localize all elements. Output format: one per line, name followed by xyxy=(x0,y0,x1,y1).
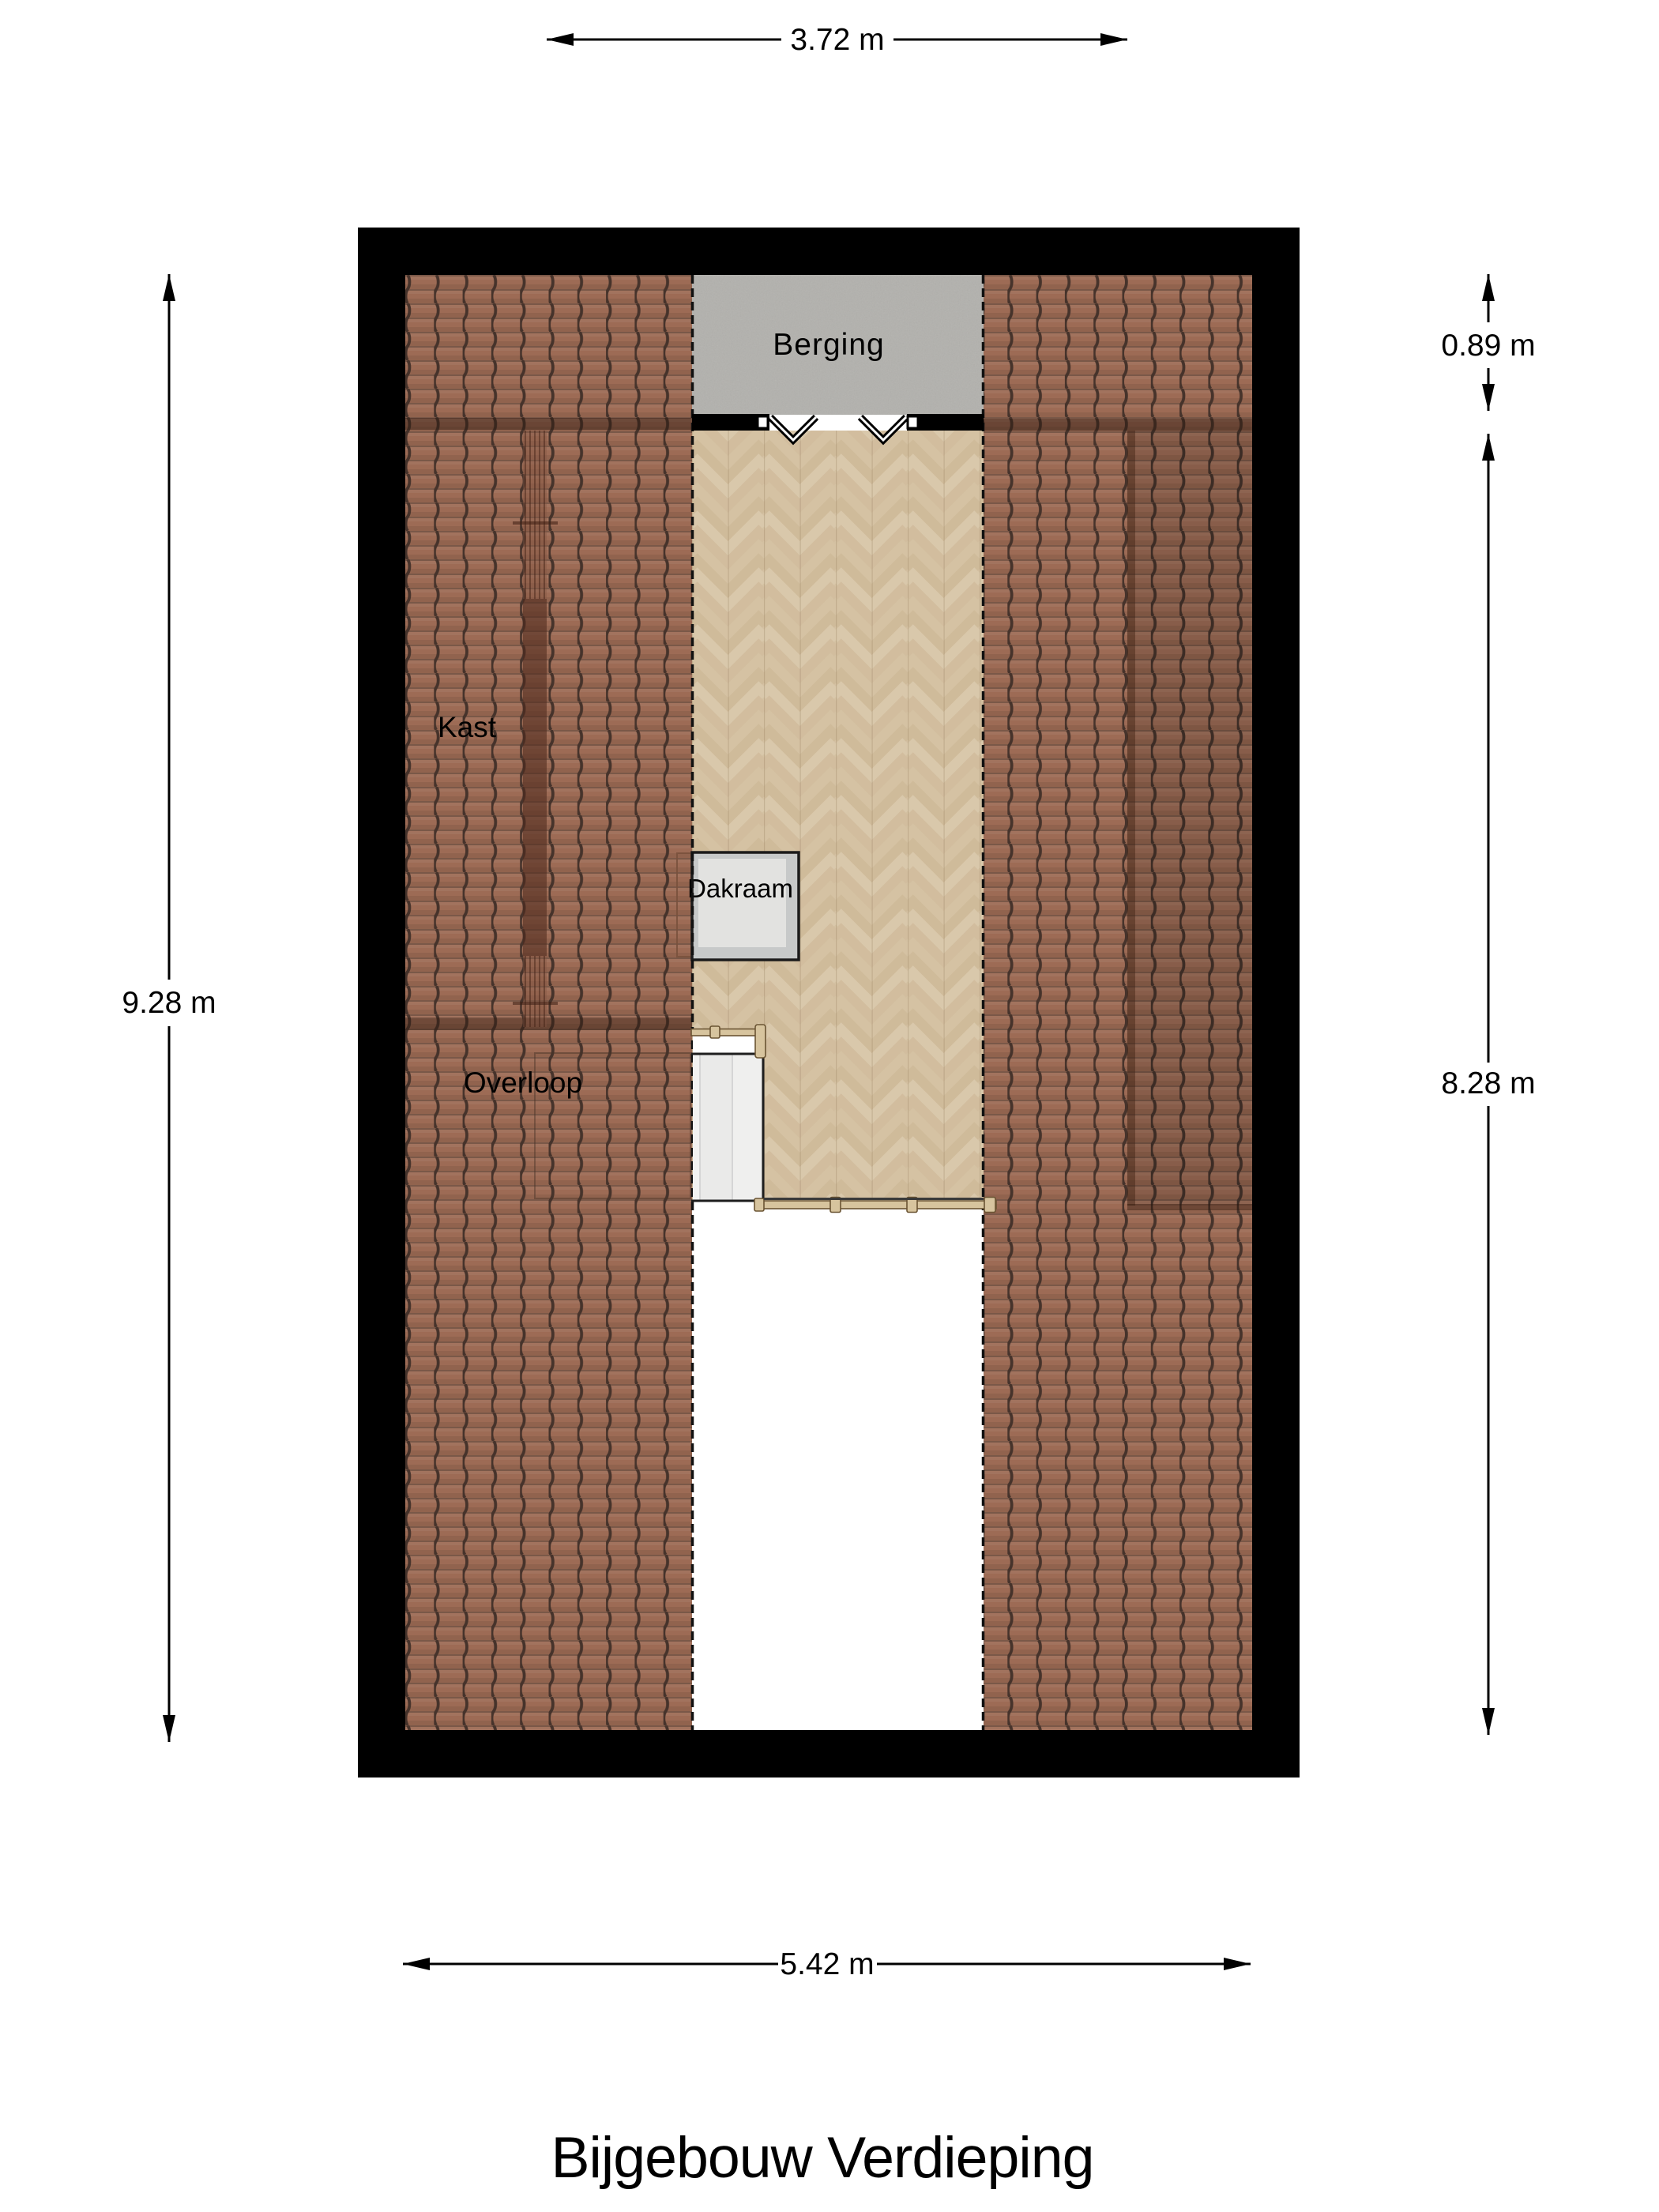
svg-text:Bijgebouw Verdieping: Bijgebouw Verdieping xyxy=(551,2124,1094,2190)
svg-text:Kast: Kast xyxy=(438,711,497,743)
svg-text:5.42 m: 5.42 m xyxy=(780,1947,874,1981)
svg-text:8.28 m: 8.28 m xyxy=(1441,1066,1535,1100)
svg-text:0.89 m: 0.89 m xyxy=(1441,329,1535,363)
svg-text:Dakraam: Dakraam xyxy=(687,874,793,903)
svg-text:Berging: Berging xyxy=(773,328,884,362)
svg-text:9.28 m: 9.28 m xyxy=(122,986,216,1020)
svg-text:3.72 m: 3.72 m xyxy=(790,23,884,57)
svg-text:Overloop: Overloop xyxy=(464,1066,582,1099)
